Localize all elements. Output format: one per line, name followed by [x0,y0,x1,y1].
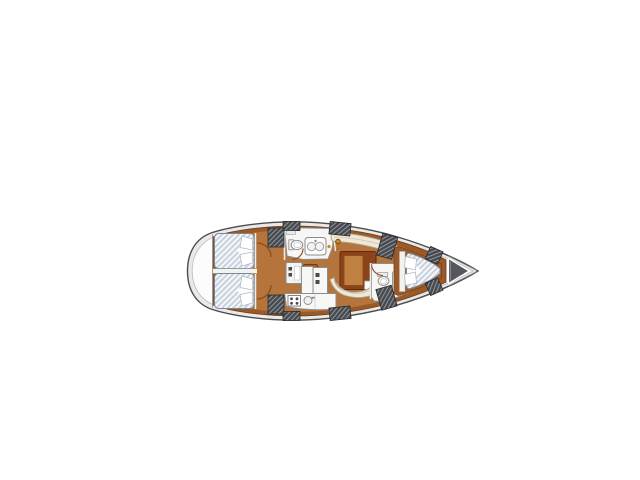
faucet [314,240,316,242]
galley-counter-inner [302,267,314,297]
oven-unit [313,268,328,297]
oven-knob [316,273,320,277]
sink-basin [315,242,323,250]
mast-post [336,239,341,244]
table-leaf [344,256,363,286]
deck-hatch [329,221,351,236]
deck-hatch [329,306,351,321]
door-knob [327,245,330,248]
deck-hatch [268,228,284,247]
latch [289,267,293,271]
engine-box-panel [295,267,301,281]
latch [289,273,293,277]
vberth-bulkhead [400,252,406,292]
burner [290,297,293,300]
stove [288,296,301,307]
oven-knob [316,280,320,284]
deck-hatch [268,295,284,314]
page-background [0,0,640,480]
pillow [405,272,417,286]
burner [290,302,293,305]
deck-hatch [283,221,300,230]
aft-cabin-starboard [215,274,255,309]
deck-hatch [283,311,300,320]
yacht-floorplan [188,221,479,320]
aft-cabin-bulkhead [213,269,257,274]
burner [296,302,299,305]
burner [296,297,299,300]
pillow [405,257,417,271]
galley-sink [304,297,312,305]
boat-floorplan-canvas [0,0,640,480]
aft-head [285,228,334,260]
sink-basin [307,242,315,250]
aft-cabin-port [215,234,255,269]
